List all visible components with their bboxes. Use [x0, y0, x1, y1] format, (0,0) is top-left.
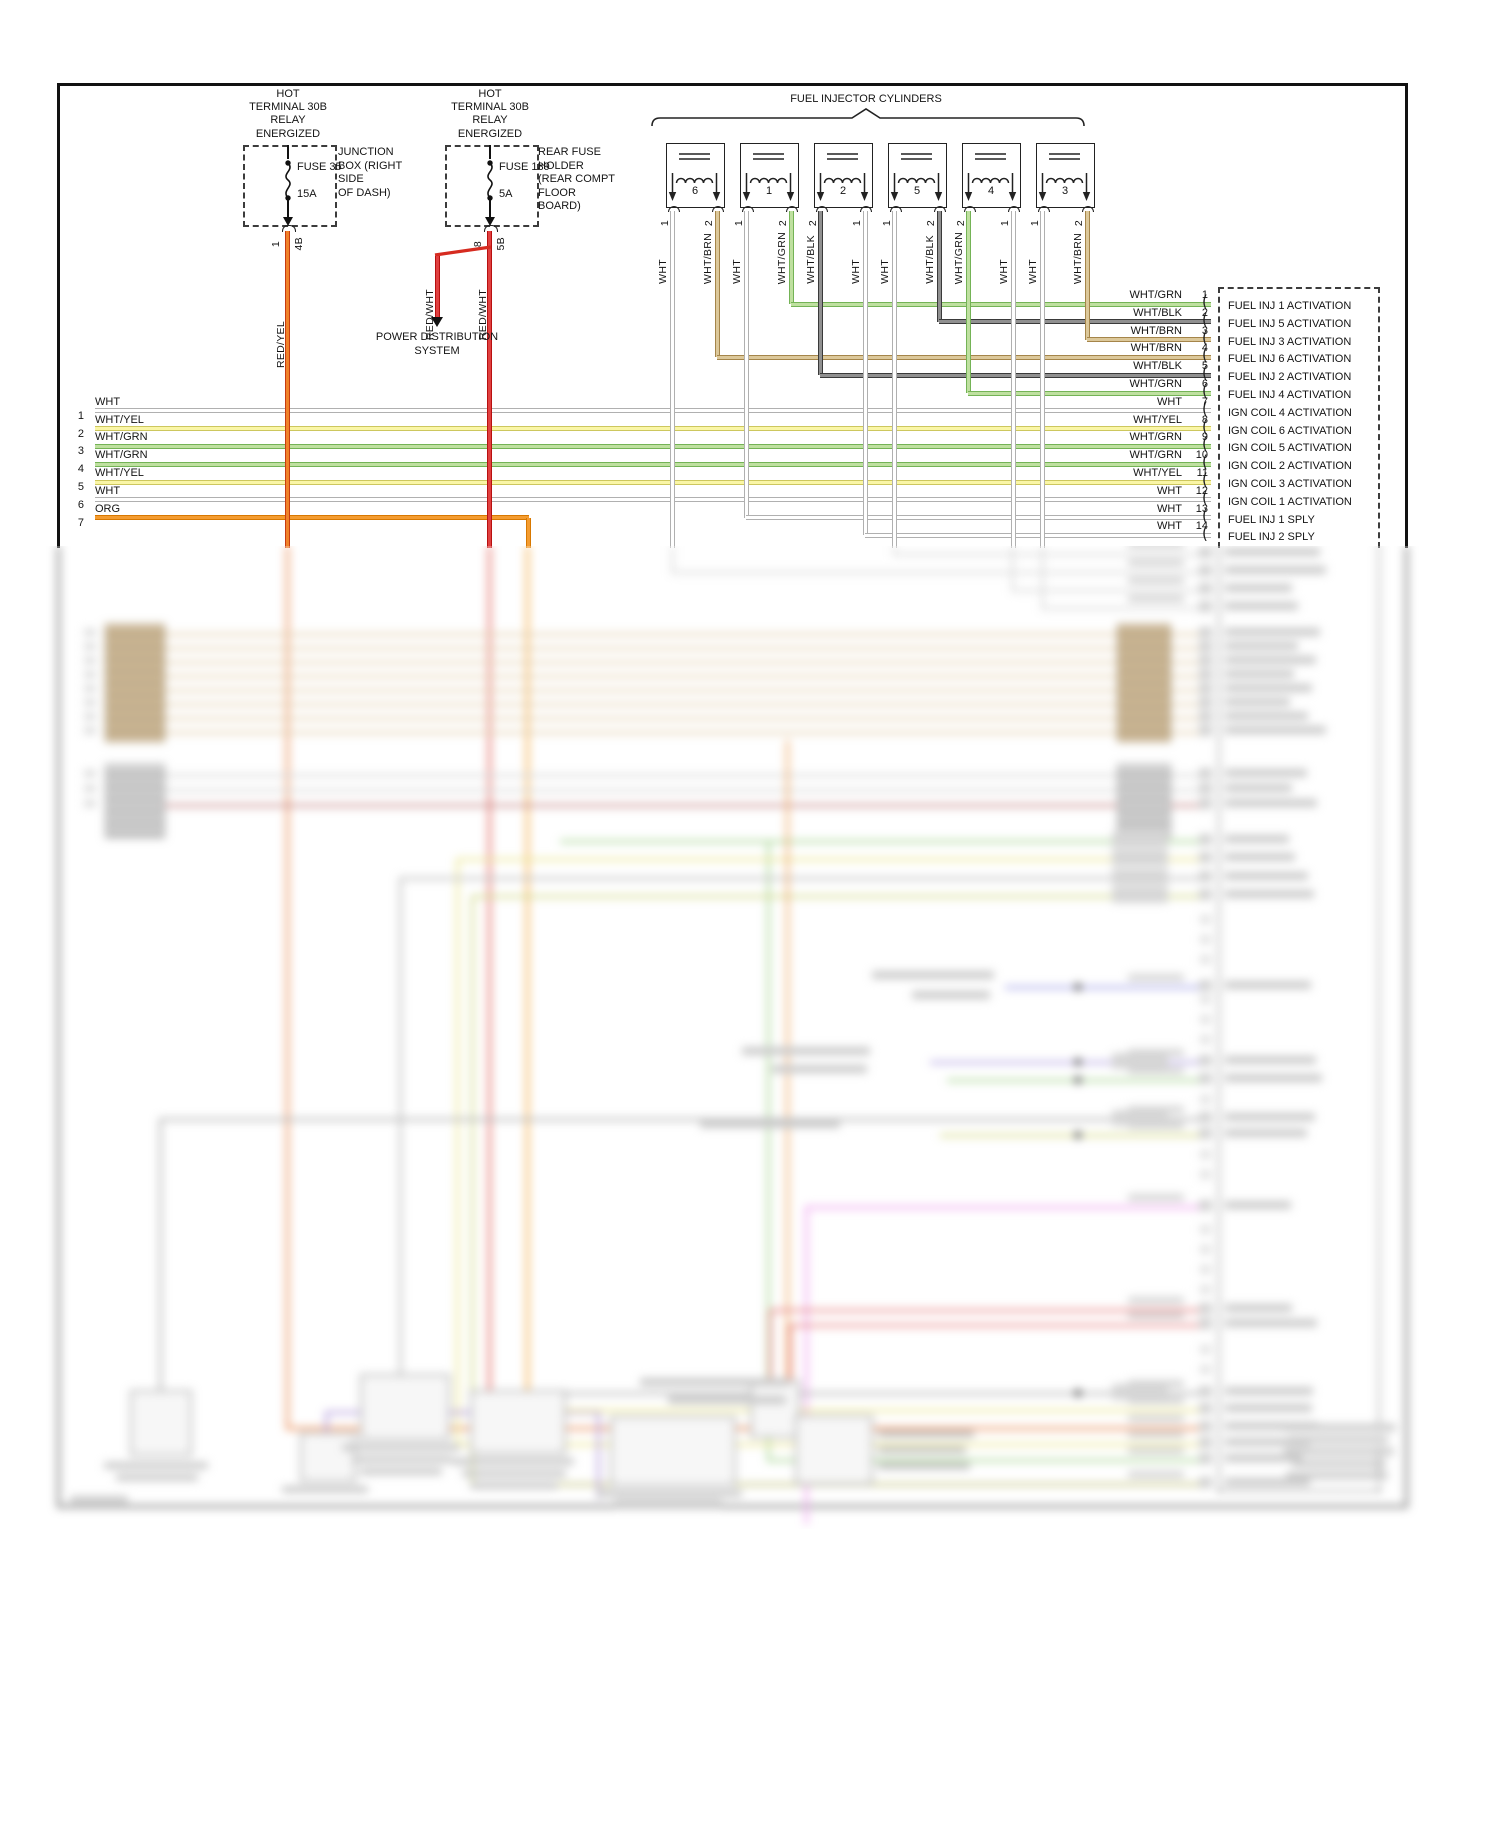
diagram-border-top [57, 83, 1408, 86]
injector-wire-color-label: WHT/GRN [954, 232, 965, 284]
ecm-pin-number: 12 [1168, 485, 1208, 498]
frost-overlay [0, 546, 1500, 1529]
ecm-pin-label: FUEL INJ 1 SPLY [1228, 514, 1378, 527]
ecm-pin-label: IGN COIL 2 ACTIVATION [1228, 460, 1378, 473]
fuse-location-note: HOLDER [538, 160, 658, 173]
injector-wire [966, 211, 971, 393]
injector-cylinder-number: 3 [1050, 185, 1080, 198]
ecm-pin-label: IGN COIL 4 ACTIVATION [1228, 407, 1378, 420]
injector-wire-color-label: WHT/GRN [777, 232, 788, 284]
injector-to-ecm-wire [1087, 337, 1211, 342]
ecm-pin-label: FUEL INJ 2 SPLY [1228, 531, 1378, 544]
hot-feed-label: RELAY [415, 114, 565, 127]
ecm-pin-label: FUEL INJ 2 ACTIVATION [1228, 371, 1378, 384]
hot-feed-label: HOT [415, 88, 565, 101]
ecm-pin-number: 7 [1168, 396, 1208, 409]
ecm-pin-label: FUEL INJ 4 ACTIVATION [1228, 389, 1378, 402]
ecm-pin-number: 11 [1168, 467, 1208, 480]
injector-wire-color-label: WHT/BLK [806, 235, 817, 284]
ecm-pin-number: 6 [1168, 378, 1208, 391]
left-row-color-label: WHT [95, 396, 215, 409]
org-drop-wire [526, 518, 531, 548]
injector-group-bracket-icon [650, 106, 1086, 128]
fuse-pin-out-label: 5B [496, 237, 507, 250]
ecm-dashed-border-left [1218, 287, 1220, 548]
injector-wire [1011, 211, 1016, 548]
red-yel-feed-wire [285, 231, 290, 548]
injector-cylinder-number: 2 [828, 185, 858, 198]
left-row-color-label: WHT/YEL [95, 467, 215, 480]
hot-feed-label: TERMINAL 30B [415, 101, 565, 114]
ecm-pin-number: 10 [1168, 449, 1208, 462]
left-row-number: 4 [60, 463, 84, 476]
ecm-pin-label: IGN COIL 6 ACTIVATION [1228, 425, 1378, 438]
ecm-pin-label: FUEL INJ 5 ACTIVATION [1228, 318, 1378, 331]
fuse-lead-bottom [489, 200, 491, 217]
left-row-color-label: WHT/GRN [95, 449, 215, 462]
injector-wire-color-label: WHT/BRN [703, 233, 714, 284]
ecm-pin-number: 2 [1168, 307, 1208, 320]
diagram-border-right [1405, 83, 1408, 548]
ecm-pin-number: 8 [1168, 414, 1208, 427]
fuse-pin-in-label: 1 [271, 241, 282, 247]
injector-group-title: FUEL INJECTOR CYLINDERS [716, 93, 1016, 106]
ecm-pin-label: FUEL INJ 6 ACTIVATION [1228, 353, 1378, 366]
ecm-dashed-border-top [1218, 287, 1380, 289]
ecm-pin-label: IGN COIL 5 ACTIVATION [1228, 442, 1378, 455]
left-row-number: 1 [60, 410, 84, 423]
fuse-location-note: BOX (RIGHT [338, 160, 458, 173]
left-row-number: 6 [60, 499, 84, 512]
hot-feed-label: HOT [213, 88, 363, 101]
diagram-blurred-region [0, 546, 1500, 1529]
fuse-location-note: JUNCTION [338, 146, 458, 159]
diagram-border-left [57, 83, 60, 548]
ecm-pin-number: 13 [1168, 503, 1208, 516]
ecm-pin-number: 14 [1168, 520, 1208, 533]
wiring-diagram-page: FUEL INJECTOR CYLINDERS 1WHT2WHT/YEL3WHT… [0, 0, 1500, 1828]
left-row-number: 5 [60, 481, 84, 494]
injector-pin-number: 2 [704, 220, 715, 226]
fuse-pin-out-label: 4B [294, 237, 305, 250]
power-distribution-label: POWER DISTRIBUTION [367, 331, 507, 344]
injector-pin-number: 2 [778, 220, 789, 226]
left-row-number: 2 [60, 428, 84, 441]
hot-feed-label: RELAY [213, 114, 363, 127]
fuse-location-note: FLOOR [538, 187, 658, 200]
fuse-location-note: BOARD) [538, 200, 658, 213]
injector-to-ecm-wire [820, 373, 1211, 378]
injector-to-ecm-wire [968, 391, 1211, 396]
injector-wire-color-label: WHT [658, 259, 669, 284]
ecm-dashed-border-right [1378, 287, 1380, 548]
fuse-element-icon [482, 158, 498, 202]
injector-to-ecm-wire [791, 302, 1211, 307]
injector-pin-number: 1 [852, 220, 863, 226]
injector-to-ecm-wire [746, 515, 1211, 520]
fuse-lead-top [489, 145, 491, 159]
injector-cylinder-number: 4 [976, 185, 1006, 198]
injector-wire [789, 211, 794, 304]
injector-wire [715, 211, 720, 357]
injector-wire [670, 211, 675, 548]
injector-cylinder-number: 1 [754, 185, 784, 198]
injector-wire [1085, 211, 1090, 340]
fuse-element-icon [280, 158, 296, 202]
injector-to-ecm-wire [717, 355, 1211, 360]
ecm-pin-label: IGN COIL 1 ACTIVATION [1228, 496, 1378, 509]
ecm-pin-label: IGN COIL 3 ACTIVATION [1228, 478, 1378, 491]
fuse-lead-bottom [287, 200, 289, 217]
injector-pin-number: 1 [1000, 220, 1011, 226]
left-row-color-label: ORG [95, 503, 215, 516]
injector-wire [937, 211, 942, 322]
fuse-lead-top [287, 145, 289, 159]
injector-wire [863, 211, 868, 535]
injector-wire-color-label: WHT/BRN [1073, 233, 1084, 284]
left-row-color-label: WHT [95, 485, 215, 498]
ecm-pin-label: FUEL INJ 1 ACTIVATION [1228, 300, 1378, 313]
injector-cylinder-number: 5 [902, 185, 932, 198]
injector-wire-color-label: WHT [851, 259, 862, 284]
ecm-pin-number: 5 [1168, 360, 1208, 373]
injector-wire-color-label: WHT [880, 259, 891, 284]
injector-wire [744, 211, 749, 518]
red-wht-branch-jog [433, 244, 493, 258]
injector-wire-color-label: WHT/BLK [925, 235, 936, 284]
fuse-location-note: OF DASH) [338, 187, 458, 200]
injector-wire [1040, 211, 1045, 548]
injector-wire [818, 211, 823, 375]
left-row-color-label: WHT/YEL [95, 414, 215, 427]
injector-pin-number: 2 [1074, 220, 1085, 226]
fuse-location-note: SIDE [338, 173, 458, 186]
ecm-pin-number: 1 [1168, 289, 1208, 302]
injector-cylinder-number: 6 [680, 185, 710, 198]
left-row-wire-7 [95, 515, 529, 520]
injector-wire-color-label: WHT [999, 259, 1010, 284]
ecm-pin-number: 4 [1168, 342, 1208, 355]
left-row-color-label: WHT/GRN [95, 431, 215, 444]
left-row-number: 7 [60, 517, 84, 530]
ecm-pin-number: 9 [1168, 431, 1208, 444]
ecm-pin-number: 3 [1168, 325, 1208, 338]
hot-feed-label: ENERGIZED [213, 128, 363, 141]
injector-wire-color-label: WHT [732, 259, 743, 284]
left-row-number: 3 [60, 445, 84, 458]
hot-feed-label: TERMINAL 30B [213, 101, 363, 114]
red-wht-feed-wire [487, 231, 492, 548]
injector-wire-color-label: WHT [1028, 259, 1039, 284]
ecm-pin-label: FUEL INJ 3 ACTIVATION [1228, 336, 1378, 349]
red-yel-wire-label: RED/YEL [276, 321, 287, 368]
power-distribution-label: SYSTEM [367, 345, 507, 358]
fuse-location-note: (REAR COMPT [538, 173, 658, 186]
injector-to-ecm-wire [939, 319, 1211, 324]
injector-wire [892, 211, 897, 548]
fuse-location-note: REAR FUSE [538, 146, 658, 159]
injector-to-ecm-wire [865, 533, 1211, 538]
injector-pin-number: 2 [926, 220, 937, 226]
hot-feed-label: ENERGIZED [415, 128, 565, 141]
